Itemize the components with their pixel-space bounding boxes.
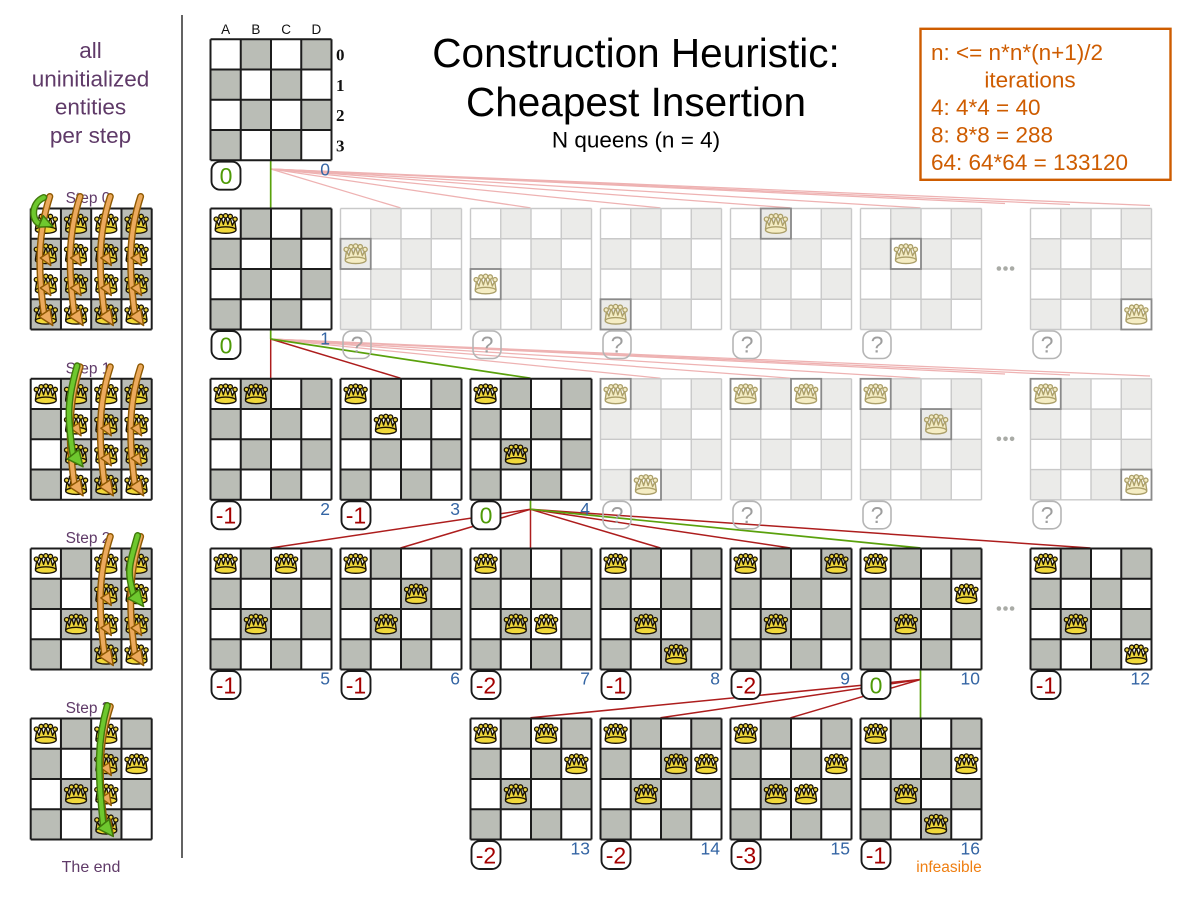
svg-text:6: 6	[450, 669, 460, 689]
svg-text:all: all	[79, 38, 102, 63]
svg-text:?: ?	[871, 332, 884, 358]
svg-text:-1: -1	[606, 672, 626, 698]
svg-text:2: 2	[320, 499, 330, 519]
svg-text:entities: entities	[55, 95, 126, 120]
svg-text:Step 2: Step 2	[66, 530, 111, 547]
svg-text:0: 0	[220, 163, 233, 189]
svg-text:per step: per step	[50, 123, 131, 148]
svg-text:-2: -2	[606, 842, 626, 868]
svg-text:3: 3	[450, 499, 460, 519]
svg-text:0: 0	[320, 159, 330, 179]
svg-text:B: B	[251, 22, 260, 37]
svg-text:-2: -2	[476, 672, 496, 698]
svg-text:4: 4	[580, 499, 590, 519]
svg-text:9: 9	[840, 669, 850, 689]
svg-text:iterations: iterations	[984, 68, 1075, 93]
svg-text:?: ?	[1041, 502, 1054, 528]
svg-text:13: 13	[571, 839, 590, 859]
svg-text:-1: -1	[216, 672, 236, 698]
svg-text:?: ?	[741, 502, 754, 528]
svg-text:10: 10	[961, 669, 981, 689]
svg-text:infeasible: infeasible	[916, 859, 982, 876]
svg-text:4: 4*4 = 40: 4: 4*4 = 40	[931, 95, 1040, 120]
svg-text:-1: -1	[1036, 672, 1056, 698]
svg-text:?: ?	[611, 332, 624, 358]
svg-text:n: <= n*n*(n+1)/2: n: <= n*n*(n+1)/2	[931, 40, 1103, 65]
svg-text:0: 0	[480, 503, 493, 529]
svg-text:8: 8*8 = 288: 8: 8*8 = 288	[931, 123, 1053, 148]
svg-text:64: 64*64 = 133120: 64: 64*64 = 133120	[931, 150, 1128, 175]
svg-text:C: C	[281, 22, 291, 37]
svg-text:?: ?	[351, 332, 364, 358]
svg-text:1: 1	[336, 76, 345, 95]
svg-text:12: 12	[1131, 669, 1150, 689]
svg-text:15: 15	[831, 839, 850, 859]
svg-text:?: ?	[871, 502, 884, 528]
svg-text:Cheapest Insertion: Cheapest Insertion	[466, 79, 806, 125]
svg-text:The end: The end	[62, 859, 121, 876]
svg-text:7: 7	[580, 669, 590, 689]
svg-text:14: 14	[701, 839, 721, 859]
svg-text:2: 2	[336, 106, 345, 125]
svg-text:5: 5	[320, 669, 330, 689]
svg-text:-2: -2	[736, 672, 756, 698]
svg-text:-3: -3	[736, 842, 756, 868]
svg-text:-1: -1	[346, 503, 366, 529]
svg-text:?: ?	[741, 332, 754, 358]
svg-text:?: ?	[481, 332, 494, 358]
svg-text:Construction Heuristic:: Construction Heuristic:	[432, 30, 839, 76]
svg-text:?: ?	[611, 502, 624, 528]
svg-text:8: 8	[710, 669, 720, 689]
svg-text:1: 1	[320, 329, 330, 349]
svg-text:0: 0	[336, 46, 345, 65]
svg-text:-1: -1	[216, 503, 236, 529]
svg-text:-1: -1	[866, 842, 886, 868]
svg-text:3: 3	[336, 136, 345, 155]
svg-text:A: A	[221, 22, 230, 37]
svg-text:uninitialized: uninitialized	[32, 67, 150, 92]
svg-text:N queens (n = 4): N queens (n = 4)	[552, 128, 720, 153]
svg-text:Step 0: Step 0	[66, 190, 111, 207]
svg-text:?: ?	[1041, 332, 1054, 358]
svg-text:-1: -1	[346, 672, 366, 698]
svg-text:-2: -2	[476, 842, 496, 868]
svg-text:16: 16	[961, 839, 980, 859]
svg-text:0: 0	[220, 332, 233, 358]
svg-text:D: D	[312, 22, 322, 37]
svg-text:0: 0	[870, 672, 883, 698]
